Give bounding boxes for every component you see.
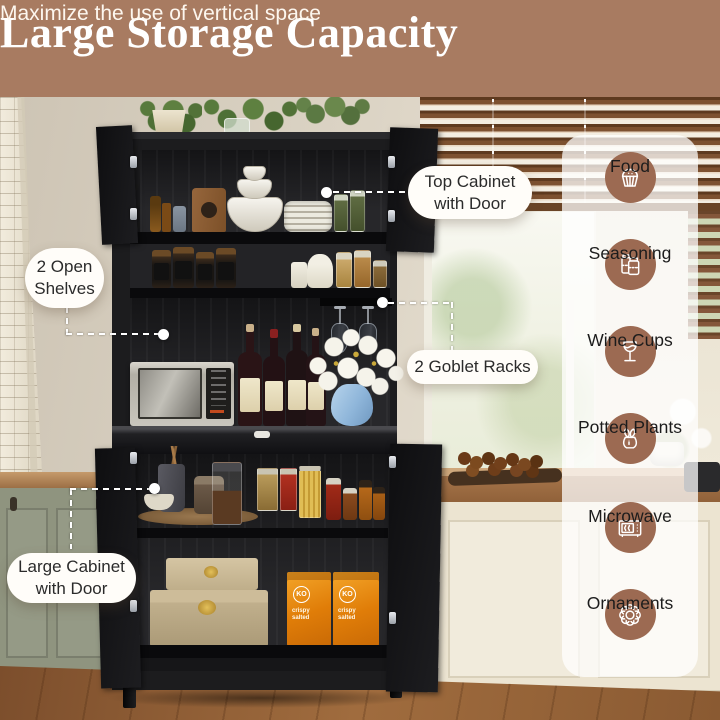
amber-bottle — [373, 487, 385, 520]
callout-line-large-cabinet — [70, 489, 72, 549]
feature-wine-cups: Wine Cups — [562, 326, 698, 406]
door-hinge — [130, 600, 137, 612]
bottom-cabinet-open-door-right — [386, 444, 442, 693]
wine-bottle-neck — [246, 330, 254, 354]
square-jar-grains — [257, 468, 278, 511]
wine-bottle-cap — [293, 324, 301, 332]
wine-bottle-neck — [270, 336, 278, 358]
feature-label: Wine Cups — [587, 330, 673, 351]
square-jar-red-sticks — [280, 468, 297, 511]
box-gold-clasp — [204, 566, 218, 578]
snack-box-caption: crispy salted — [338, 608, 372, 622]
microwave-control-panel — [206, 368, 231, 419]
glass-storage-jar — [354, 250, 371, 288]
hutch-counter-drawer — [112, 426, 397, 454]
door-hinge — [389, 456, 396, 468]
callout-line-open-shelves — [66, 307, 68, 335]
wine-label — [265, 381, 283, 411]
glass-storage-jar — [336, 252, 352, 288]
door-hinge — [389, 612, 396, 624]
door-hinge — [130, 156, 137, 168]
tea-glass-jar — [334, 194, 348, 232]
wine-bottle-cap — [270, 329, 278, 338]
wine-label — [288, 380, 306, 410]
box-gold-clasp — [198, 600, 216, 615]
wine-bottle-neck — [293, 330, 301, 352]
kitchen-cabinet-door — [448, 520, 580, 678]
callout-line-goblet-racks — [388, 302, 452, 304]
spice-jar — [216, 248, 236, 288]
callout-top-cabinet: Top Cabinet with Door — [408, 166, 532, 219]
snack-box-logo: KO — [293, 586, 310, 603]
plant-leaves — [292, 96, 370, 126]
door-hinge — [388, 156, 395, 168]
callout-dot-top-cabinet — [321, 187, 332, 198]
callout-dot-large-cabinet — [149, 483, 160, 494]
callout-dot-goblet-racks — [377, 297, 388, 308]
amber-bottle — [359, 480, 372, 520]
feature-label: Microwave — [588, 506, 672, 527]
cabinet-floor-shadow — [105, 688, 415, 708]
feature-microwave: Microwave — [562, 502, 698, 582]
callout-goblet-racks: 2 Goblet Racks — [407, 350, 538, 384]
top-cabinet-open-door-left — [96, 125, 138, 245]
callout-open-shelves: 2 Open Shelves — [25, 248, 104, 308]
header-banner: Large Storage Capacity Maximize the use … — [0, 0, 720, 97]
gray-jar — [173, 206, 186, 232]
beige-storage-box — [150, 590, 268, 647]
product-infographic: KO crispy salted KO crispy salted Top Ca — [0, 0, 720, 720]
feature-ornaments: Ornaments — [562, 589, 698, 669]
feature-label: Ornaments — [587, 593, 674, 614]
glass-storage-jar — [373, 260, 387, 288]
callout-line-open-shelves — [66, 333, 160, 335]
spice-jar-small — [343, 488, 357, 520]
wine-label — [240, 378, 260, 412]
callout-line-goblet-racks — [451, 302, 453, 350]
callout-line-top-cabinet — [333, 191, 408, 193]
flour-sack — [307, 254, 333, 288]
wine-bottle-cap — [246, 324, 254, 332]
feature-seasoning: Seasoning — [562, 239, 698, 319]
amber-bottle — [162, 203, 171, 232]
tea-glass-jar — [350, 190, 365, 232]
feature-label: Seasoning — [589, 243, 672, 264]
door-hinge — [130, 452, 137, 464]
white-canister — [291, 262, 307, 288]
callout-line-large-cabinet — [70, 488, 152, 490]
callout-dot-open-shelves — [158, 329, 169, 340]
square-jar-pasta — [299, 466, 321, 518]
feature-list-panel: Food Seasoning — [562, 135, 698, 677]
spice-jar — [152, 250, 171, 288]
coffee-paper-bag — [192, 188, 226, 232]
blue-flower-vase — [331, 384, 373, 426]
feature-label: Food — [610, 156, 650, 177]
cabinet-base-apron — [112, 658, 397, 671]
plate-stack — [284, 201, 332, 232]
callout-large-cabinet: Large Cabinet with Door — [7, 553, 136, 603]
microwave-door — [138, 368, 202, 419]
hutch-top-board — [106, 132, 402, 139]
shelf-edge — [130, 232, 390, 244]
cabinet-knob — [10, 497, 17, 511]
feature-potted-plants: Potted Plants — [562, 413, 698, 493]
spice-jar — [173, 247, 194, 288]
door-hinge — [388, 210, 395, 222]
red-spice-jar — [326, 478, 341, 520]
shelf-edge — [132, 528, 388, 538]
door-hinge — [130, 208, 137, 220]
snack-box-logo: KO — [339, 586, 356, 603]
shelf-edge — [132, 645, 388, 658]
snack-box: KO crispy salted — [333, 572, 379, 646]
amber-bottle — [150, 196, 161, 232]
glass-canister — [212, 462, 242, 525]
shelf-edge — [130, 288, 390, 298]
feature-label: Potted Plants — [578, 417, 682, 438]
spice-jar — [196, 252, 214, 288]
feature-food: Food — [562, 152, 698, 232]
page-subtitle: Maximize the use of vertical space — [0, 2, 321, 26]
snack-box-caption: crispy salted — [292, 608, 326, 622]
snack-box: KO crispy salted — [287, 572, 331, 646]
dates-on-board — [458, 452, 471, 465]
drawer-knob — [254, 431, 270, 438]
